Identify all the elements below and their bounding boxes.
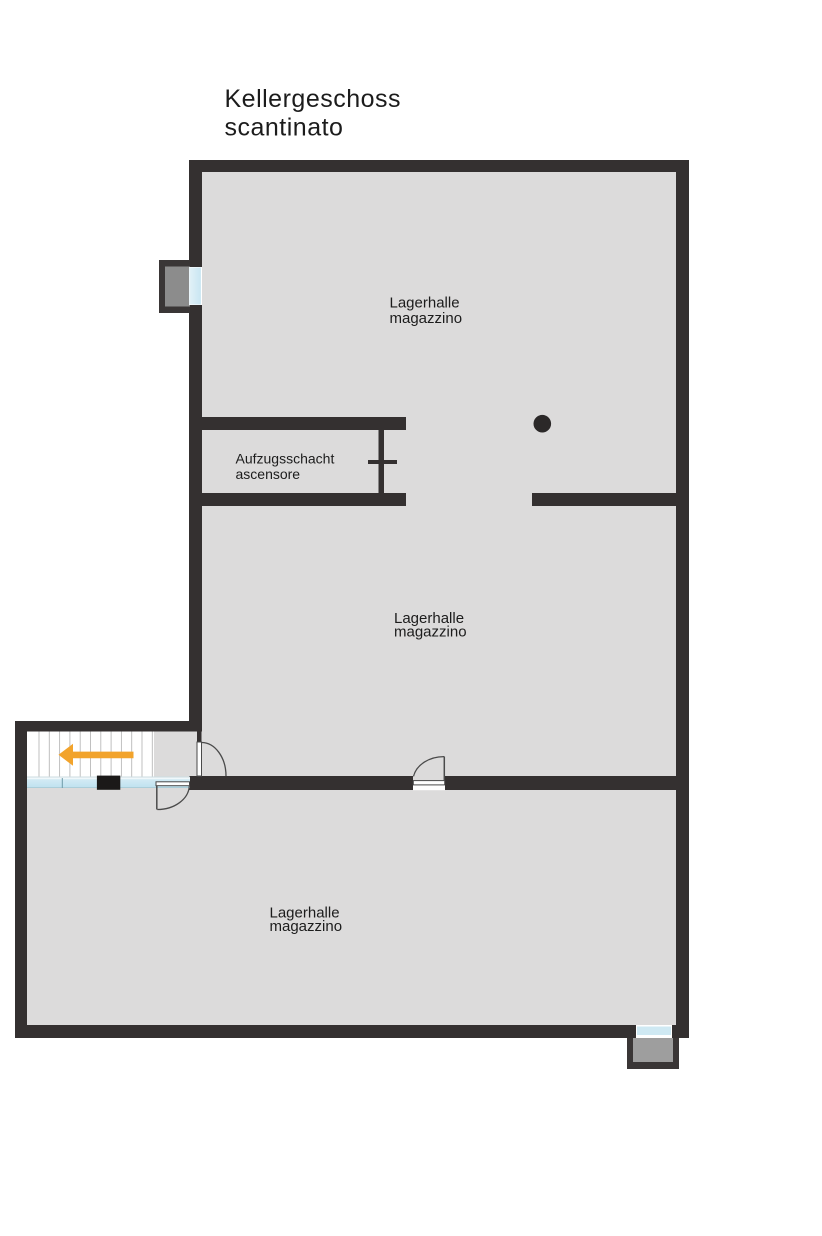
svg-text:Aufzugsschacht: Aufzugsschacht bbox=[236, 450, 335, 466]
svg-text:magazzino: magazzino bbox=[394, 624, 467, 641]
svg-text:scantinato: scantinato bbox=[225, 114, 344, 142]
svg-text:magazzino: magazzino bbox=[390, 310, 463, 327]
svg-text:magazzino: magazzino bbox=[270, 918, 343, 935]
svg-text:Kellergeschoss: Kellergeschoss bbox=[225, 85, 402, 113]
svg-text:ascensore: ascensore bbox=[236, 466, 301, 482]
